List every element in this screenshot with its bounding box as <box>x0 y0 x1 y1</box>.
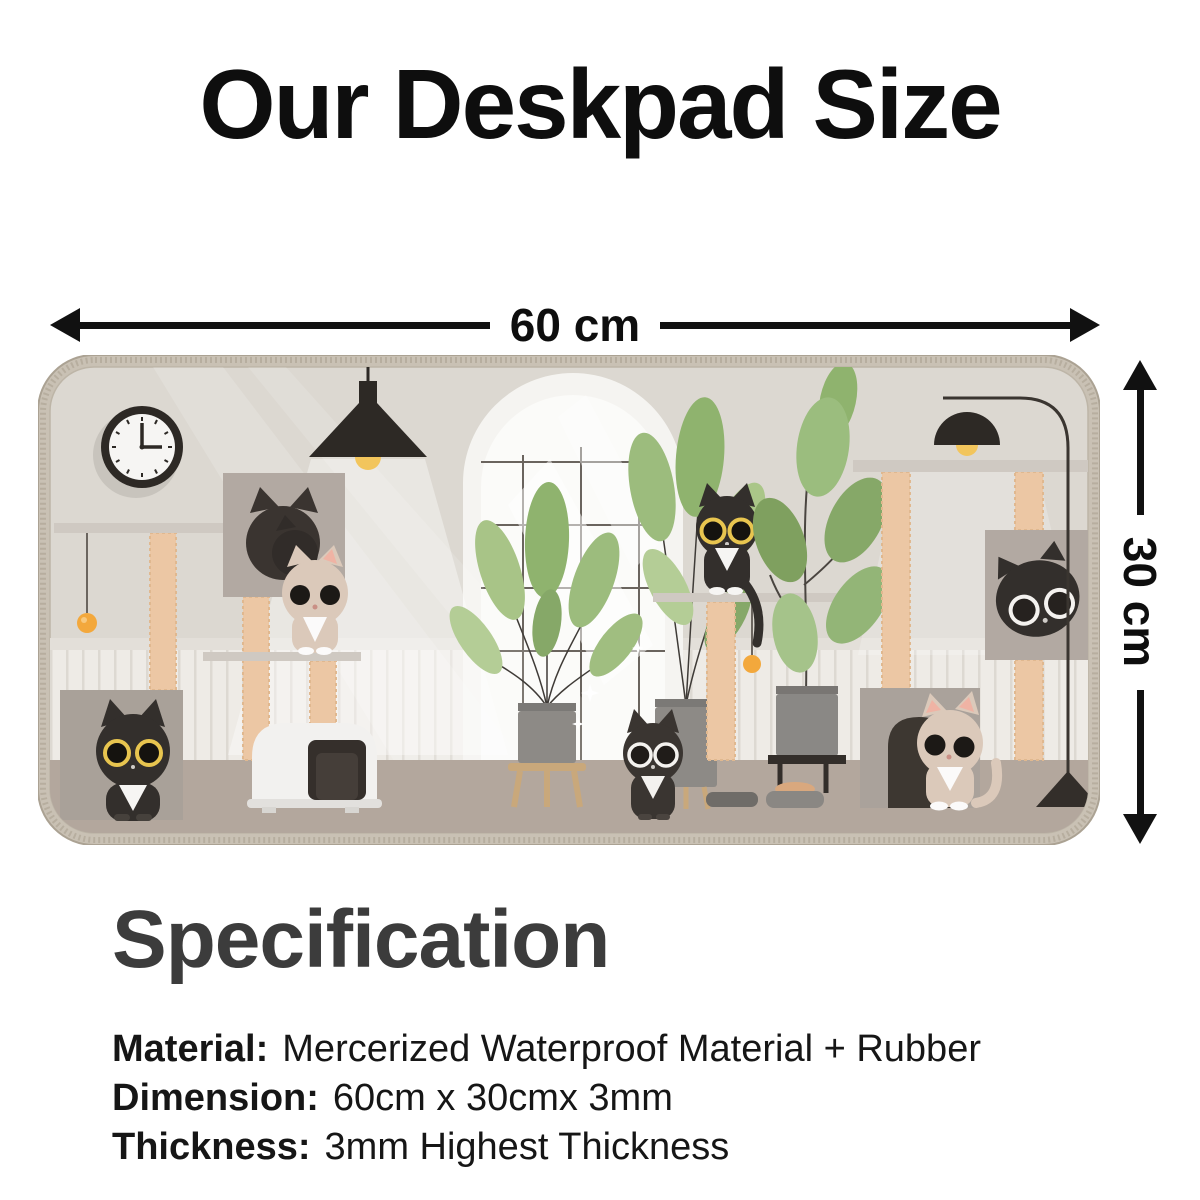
spec-row-dimension: Dimension:60cm x 30cmx 3mm <box>112 1074 1152 1123</box>
litter-box <box>247 723 382 813</box>
height-dimension-label-wrap: 30 cm <box>1116 515 1164 690</box>
spec-value: 60cm x 30cmx 3mm <box>333 1077 673 1119</box>
spec-value: Mercerized Waterproof Material + Rubber <box>282 1028 981 1070</box>
width-dimension-arrow: 60 cm <box>50 300 1100 350</box>
height-dimension-label: 30 cm <box>1113 537 1167 667</box>
specification-section: Specification Material:Mercerized Waterp… <box>112 893 1152 1172</box>
black-cat-on-floor <box>623 709 683 820</box>
deskpad-image <box>38 355 1100 845</box>
arrow-line <box>660 322 1070 329</box>
hanging-ball-toy <box>743 655 761 673</box>
spec-label: Dimension: <box>112 1077 319 1119</box>
specification-heading: Specification <box>112 893 1152 987</box>
arrowhead-down-icon <box>1123 814 1157 844</box>
product-infographic: Our Deskpad Size 60 cm <box>0 0 1200 1200</box>
page-title: Our Deskpad Size <box>0 48 1200 161</box>
arrow-line <box>1137 390 1144 515</box>
spec-value: 3mm Highest Thickness <box>325 1126 730 1168</box>
arrow-line <box>80 322 490 329</box>
spec-label: Material: <box>112 1028 268 1070</box>
spec-row-material: Material:Mercerized Waterproof Material … <box>112 1025 1152 1074</box>
tuxedo-cat-in-cube <box>60 690 183 821</box>
arrowhead-right-icon <box>1070 308 1100 342</box>
height-dimension-arrow: 30 cm <box>1116 360 1164 844</box>
width-dimension-label: 60 cm <box>510 298 640 352</box>
arrow-line <box>1137 690 1144 815</box>
arrowhead-up-icon <box>1123 360 1157 390</box>
arrowhead-left-icon <box>50 308 80 342</box>
hanging-ball-toy <box>77 613 97 633</box>
spec-row-thickness: Thickness:3mm Highest Thickness <box>112 1123 1152 1172</box>
spec-label: Thickness: <box>112 1126 311 1168</box>
deskpad-illustration <box>38 355 1100 845</box>
